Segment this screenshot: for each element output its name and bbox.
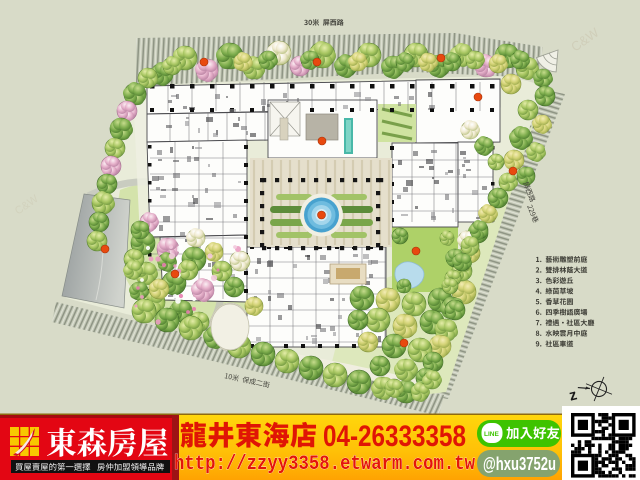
svg-text:04-26333358: 04-26333358: [323, 420, 466, 453]
svg-text:http://zzyy3358.etwarm.com.tw: http://zzyy3358.etwarm.com.tw: [174, 453, 476, 476]
svg-text:@hxu3752u: @hxu3752u: [483, 454, 556, 474]
svg-text:LINE: LINE: [484, 431, 499, 438]
